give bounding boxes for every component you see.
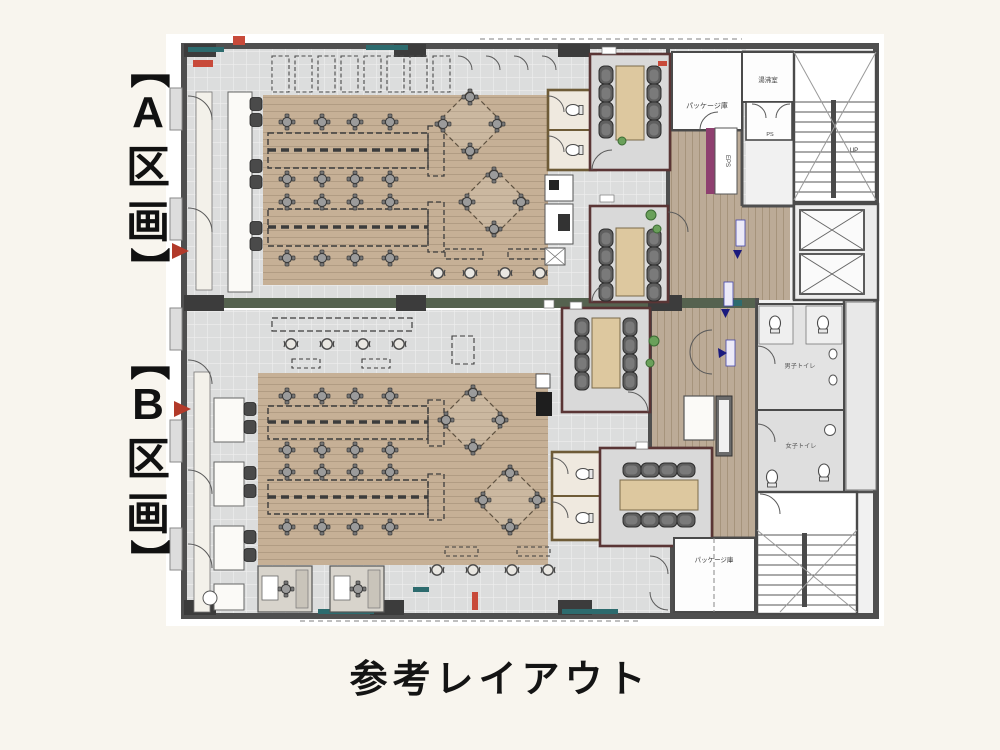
bracket-close: 】	[136, 238, 161, 298]
corridor-locker-front	[719, 400, 729, 452]
eps-label: EPS	[724, 155, 730, 167]
room-kitchenette: 湯沸室	[742, 52, 794, 102]
mens-toilet-label: 男子トイレ	[785, 363, 816, 370]
stairs-up-label: UP	[850, 148, 858, 154]
bracket-open: 【	[136, 38, 161, 98]
room-womens-toilet: 女子トイレ	[757, 410, 844, 492]
ps-label: PS	[766, 132, 774, 138]
stairs-bottom	[757, 492, 857, 614]
window-counter-a	[196, 92, 262, 292]
meeting-room-b1	[562, 308, 650, 412]
package-top-label: パッケージ庫	[686, 101, 728, 110]
room-package-top: パッケージ庫	[672, 52, 742, 130]
room-mens-toilet: 男子トイレ	[757, 304, 844, 410]
bracket-open: 【	[136, 330, 161, 390]
section-b-label: 【 B 区 画 】	[118, 348, 178, 572]
stairs-top: UP	[794, 52, 876, 202]
meeting-room-a1	[590, 54, 670, 170]
section-a-label: 【 A 区 画 】	[118, 56, 178, 280]
package-bottom-label: パッケージ庫	[695, 555, 734, 564]
eps-shaft: EPS	[706, 128, 737, 194]
meeting-room-b2	[600, 448, 712, 546]
service-shaft	[846, 302, 876, 490]
womens-toilet-label: 女子トイレ	[786, 442, 817, 450]
kitchenette-label: 湯沸室	[758, 75, 778, 84]
meeting-room-a2	[590, 206, 668, 302]
elevators	[794, 204, 878, 300]
reference-layout-page: パッケージ庫 湯沸室 PS UP EPS	[0, 0, 1000, 750]
wood-floor-b	[258, 373, 548, 565]
room-ps: PS	[746, 102, 792, 140]
page-caption: 参考レイアウト	[0, 648, 1000, 703]
room-package-bottom: パッケージ庫	[674, 538, 755, 612]
corridor-cabinet	[684, 396, 714, 440]
equipment-b	[536, 374, 552, 416]
bracket-close: 】	[136, 530, 161, 590]
